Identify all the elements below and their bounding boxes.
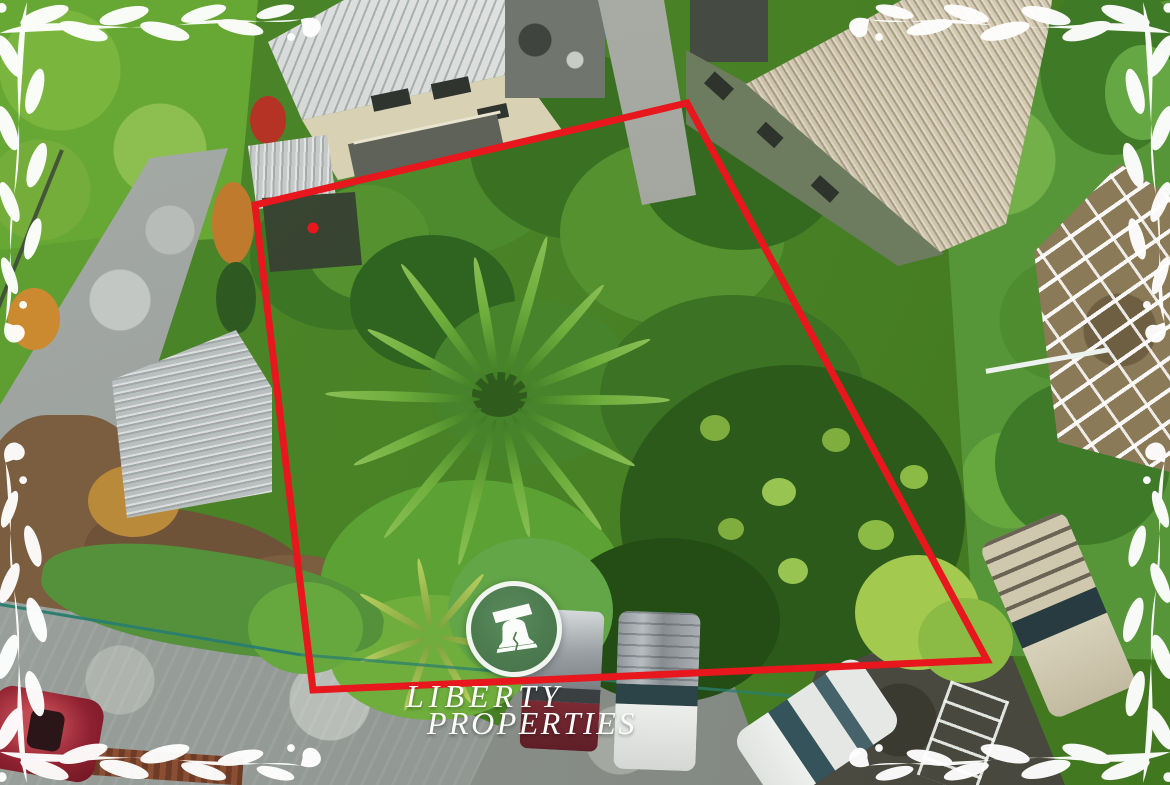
corner-ornament-bottom-left bbox=[0, 441, 324, 785]
foliage-blob bbox=[762, 478, 796, 506]
corner-ornament-bottom-right bbox=[846, 441, 1170, 785]
aerial-property-photo: LIBERTY PROPERTIES bbox=[0, 0, 1170, 785]
logo-circle bbox=[466, 581, 562, 677]
house-backyard-deck bbox=[505, 0, 605, 98]
corner-ornament-top-left bbox=[0, 0, 324, 344]
white-suv bbox=[613, 611, 700, 772]
plant-frond bbox=[520, 395, 670, 405]
liberty-bell-icon bbox=[483, 598, 545, 660]
corner-ornament-top-right bbox=[846, 0, 1170, 344]
foliage-blob bbox=[700, 415, 730, 441]
foliage-blob bbox=[778, 558, 808, 584]
suv-roof bbox=[616, 611, 700, 686]
suv-windshield bbox=[616, 683, 699, 706]
upper-deck-dark bbox=[690, 0, 768, 62]
foliage-blob bbox=[718, 518, 744, 540]
watermark-company-line2: PROPERTIES bbox=[427, 705, 637, 742]
